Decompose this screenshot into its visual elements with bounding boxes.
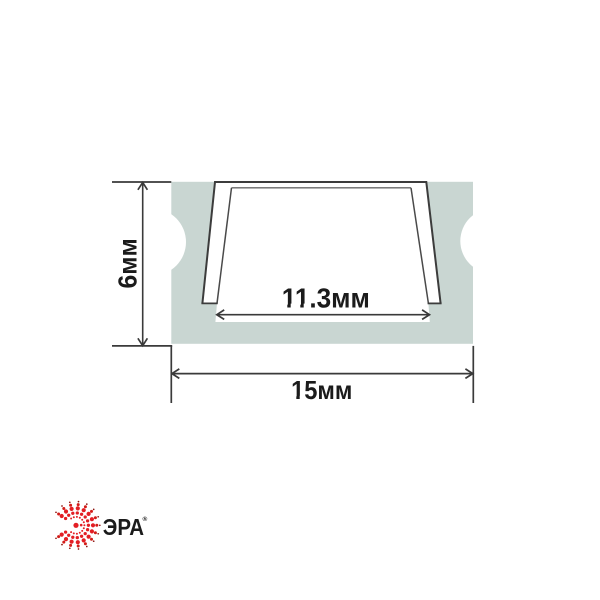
svg-text:ЭРА: ЭРА xyxy=(103,514,144,540)
svg-text:6мм: 6мм xyxy=(114,238,142,288)
svg-text:®: ® xyxy=(143,515,148,523)
svg-text:15мм: 15мм xyxy=(291,376,352,405)
